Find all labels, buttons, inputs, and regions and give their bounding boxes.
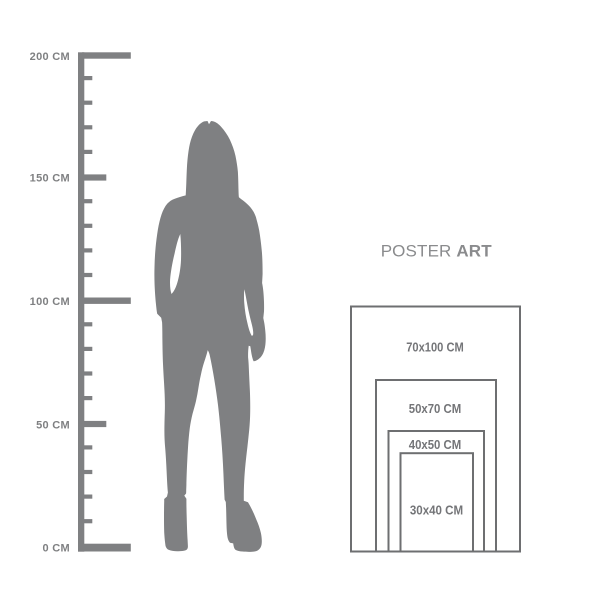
- svg-text:30x40 CM: 30x40 CM: [410, 503, 463, 518]
- svg-text:150 CM: 150 CM: [30, 172, 70, 184]
- svg-text:40x50 CM: 40x50 CM: [409, 437, 462, 452]
- svg-text:POSTER ART: POSTER ART: [381, 242, 493, 261]
- svg-text:70x100 CM: 70x100 CM: [406, 339, 464, 354]
- svg-text:100 CM: 100 CM: [30, 296, 70, 308]
- svg-text:0 CM: 0 CM: [43, 543, 70, 555]
- svg-text:50x70 CM: 50x70 CM: [409, 401, 462, 416]
- svg-text:200 CM: 200 CM: [30, 51, 70, 63]
- svg-text:50 CM: 50 CM: [36, 419, 70, 431]
